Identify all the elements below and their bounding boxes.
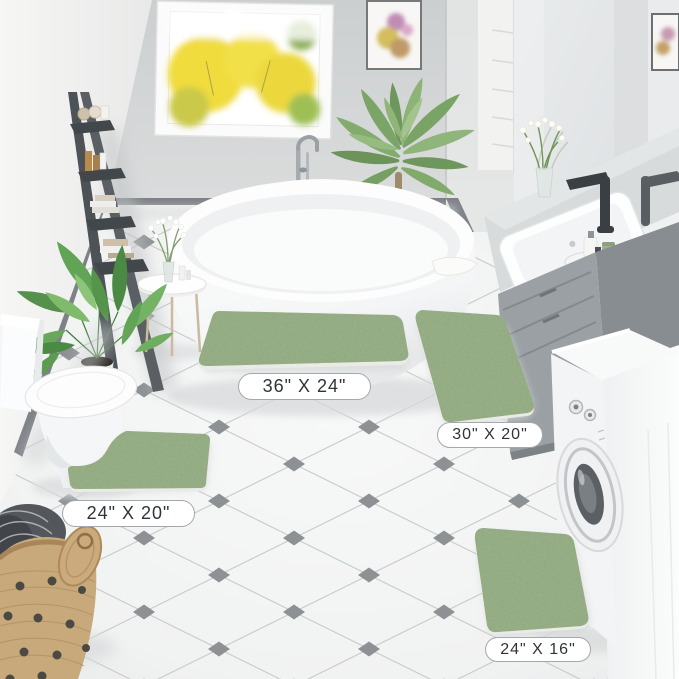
size-label-30x20: 30" X 20" xyxy=(437,422,543,448)
window xyxy=(155,1,334,139)
small-rug xyxy=(475,528,589,637)
wall-shelf-column xyxy=(478,0,514,172)
size-label-24x16: 24" X 16" xyxy=(485,637,591,662)
size-label-24x20: 24" X 20" xyxy=(62,500,195,527)
wall-art-center xyxy=(367,1,421,69)
bathroom-product-photo: 36" X 24" 30" X 20" 24" X 20" 24" X 16" xyxy=(0,0,679,679)
wall-art-right xyxy=(652,14,679,70)
size-label-36x24: 36" X 24" xyxy=(238,373,371,400)
bathroom-scene xyxy=(0,0,679,679)
main-rug xyxy=(199,311,408,372)
